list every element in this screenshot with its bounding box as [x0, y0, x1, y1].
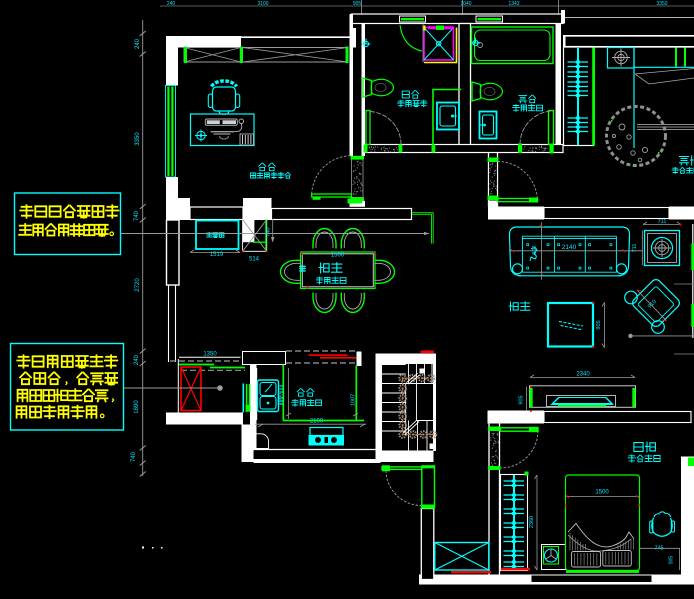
svg-text:514: 514: [249, 257, 260, 263]
svg-text:240: 240: [134, 354, 140, 365]
svg-text:740: 740: [266, 227, 272, 236]
svg-text:2100: 2100: [310, 419, 324, 425]
svg-text:905: 905: [596, 320, 602, 329]
svg-text:2340: 2340: [576, 372, 590, 378]
svg-text:2360: 2360: [529, 516, 535, 528]
svg-text:240: 240: [167, 1, 176, 7]
svg-text:711: 711: [658, 219, 667, 225]
svg-text:1500: 1500: [595, 490, 609, 496]
svg-text:1343: 1343: [508, 1, 519, 7]
svg-text:1040: 1040: [460, 1, 471, 7]
svg-text:905: 905: [519, 395, 525, 404]
svg-text:745: 745: [654, 546, 663, 552]
svg-text:1350: 1350: [203, 352, 217, 358]
svg-text:1890: 1890: [134, 400, 140, 414]
svg-text:1007: 1007: [351, 394, 357, 406]
svg-text:740: 740: [131, 451, 137, 462]
svg-text:802: 802: [532, 245, 538, 254]
svg-text:905: 905: [669, 556, 675, 565]
svg-text:1519: 1519: [210, 252, 224, 258]
svg-text:905: 905: [353, 1, 362, 7]
svg-text:740: 740: [134, 210, 140, 221]
svg-text:3100: 3100: [257, 1, 268, 7]
svg-text:240: 240: [135, 38, 141, 49]
svg-text:2720: 2720: [135, 278, 141, 292]
svg-text:3350: 3350: [656, 1, 667, 7]
svg-text:1500: 1500: [331, 253, 345, 259]
svg-text:711: 711: [632, 244, 638, 253]
svg-text:1060: 1060: [278, 393, 284, 405]
svg-text:2140: 2140: [562, 244, 577, 251]
svg-text:3350: 3350: [135, 132, 141, 146]
